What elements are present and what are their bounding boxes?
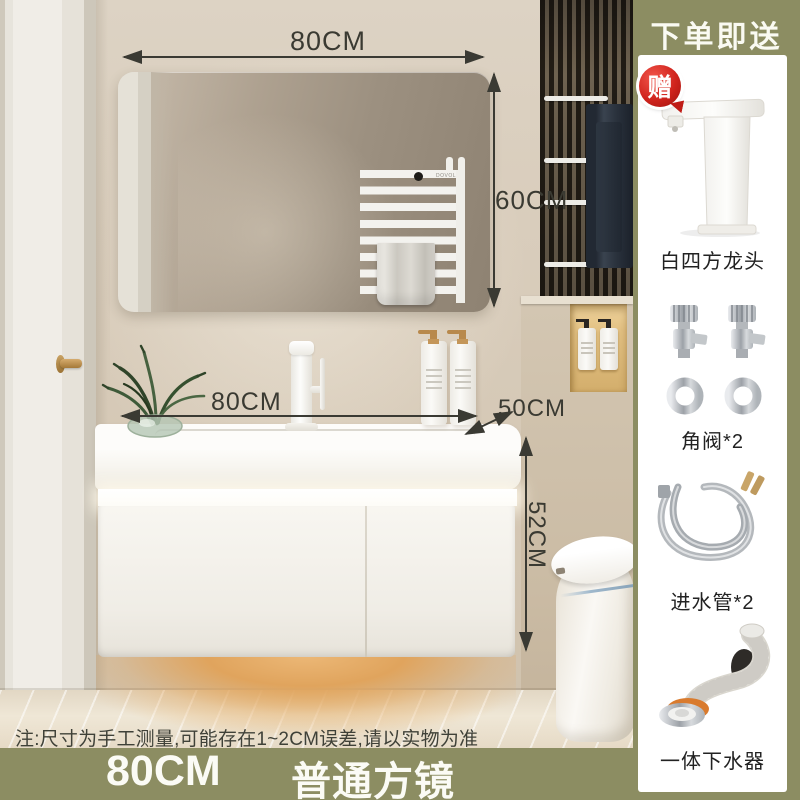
gift-panel-title: 下单即送 bbox=[633, 12, 800, 56]
towel-bar bbox=[544, 96, 608, 101]
mirror-reflection-towel-radiator: DOVOL bbox=[360, 170, 472, 303]
basin-faucet-cap bbox=[289, 341, 314, 355]
radiator-pipe bbox=[458, 157, 465, 171]
mirror-reflection-doorframe bbox=[118, 72, 138, 312]
radiator-rail bbox=[456, 170, 465, 303]
bottle-nozzle bbox=[576, 319, 585, 322]
soap-bottle bbox=[450, 341, 476, 425]
glass-vase bbox=[128, 415, 182, 437]
smart-toilet bbox=[556, 556, 633, 742]
mirror-reflection-doorframe bbox=[138, 72, 151, 312]
bottle-collar bbox=[428, 339, 439, 344]
shampoo-bottle bbox=[600, 328, 618, 370]
vanity-light-strip bbox=[98, 489, 517, 506]
bottle-label bbox=[455, 369, 471, 391]
toilet-hinge bbox=[556, 567, 566, 574]
product-listing-image: DOVOL bbox=[0, 0, 800, 800]
white-towel bbox=[377, 243, 435, 305]
cabinet-underlight-glow bbox=[96, 655, 516, 733]
footer-bar: 80CM 普通方镜 bbox=[0, 748, 640, 800]
bottle-nozzle bbox=[418, 330, 431, 334]
bottle-nozzle bbox=[447, 330, 460, 334]
basin-faucet-body bbox=[291, 352, 312, 428]
bathroom-photo: DOVOL bbox=[0, 0, 633, 748]
gift-item-label: 角阀*2 bbox=[638, 425, 787, 454]
radiator-brand-text: DOVOL bbox=[436, 173, 456, 179]
square-mirror: DOVOL bbox=[118, 72, 490, 312]
mirror-height-label: 60CM bbox=[495, 185, 568, 216]
footer-size-label: 80CM bbox=[106, 747, 221, 796]
basin-faucet-base bbox=[285, 423, 318, 431]
backlit-niche bbox=[570, 304, 627, 392]
gift-item-label: 一体下水器 bbox=[638, 745, 787, 774]
gift-sidebar: 下单即送 赠 bbox=[633, 0, 800, 800]
bottle-collar bbox=[457, 339, 468, 344]
vanity-depth-label: 50CM bbox=[498, 395, 566, 423]
angle-valve bbox=[728, 305, 766, 358]
angle-valve bbox=[670, 305, 708, 358]
mirror-width-label: 80CM bbox=[290, 26, 366, 57]
door-knob bbox=[60, 359, 82, 368]
cabinet-door-seam bbox=[365, 506, 367, 657]
washer-ring bbox=[729, 382, 757, 410]
bottle-label bbox=[426, 369, 442, 391]
bottle-nozzle bbox=[598, 319, 607, 322]
gift-faucet-image bbox=[638, 87, 787, 237]
gift-badge: 赠 bbox=[639, 65, 681, 107]
washer-ring bbox=[671, 382, 699, 410]
dark-towel-fold bbox=[596, 122, 622, 252]
bathroom-door bbox=[0, 0, 96, 746]
measurement-note: 注:尺寸为手工测量,可能存在1~2CM误差,请以实物为准 bbox=[15, 724, 478, 748]
gift-card: 赠 bbox=[638, 55, 787, 792]
vanity-cabinet bbox=[98, 506, 515, 657]
vanity-width-label: 80CM bbox=[211, 388, 282, 417]
footer-mirror-type-label: 普通方镜 bbox=[291, 749, 455, 800]
soap-bottle bbox=[421, 341, 447, 425]
vanity-height-label: 52CM bbox=[522, 501, 550, 569]
gift-drain-image bbox=[638, 611, 787, 739]
gift-inlet-hoses-image bbox=[638, 457, 787, 575]
niche-shelf bbox=[521, 296, 633, 304]
bottle-label bbox=[581, 342, 593, 354]
gift-angle-valves-image bbox=[638, 301, 787, 419]
gift-item-label: 白四方龙头 bbox=[638, 245, 787, 274]
shampoo-bottle bbox=[578, 328, 596, 370]
mirror-reflection-shadow bbox=[151, 72, 173, 312]
basin-faucet-handle bbox=[320, 358, 325, 410]
radiator-pipe bbox=[446, 157, 453, 171]
radiator-dial bbox=[414, 172, 423, 181]
bottle-label bbox=[603, 342, 615, 354]
